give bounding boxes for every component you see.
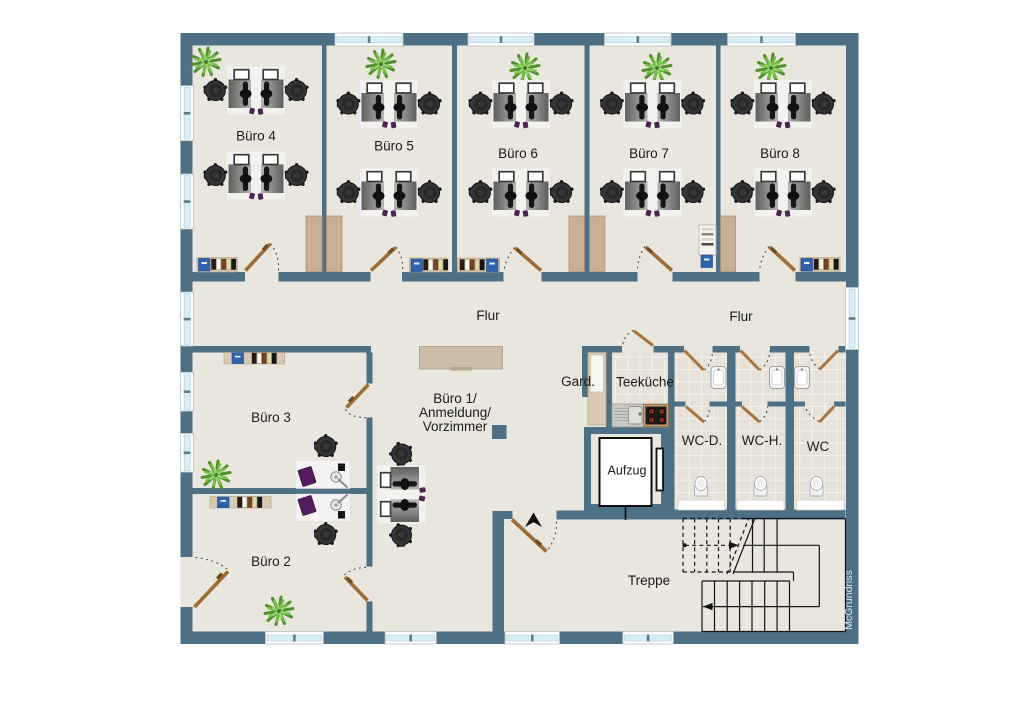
svg-text:WC: WC	[807, 439, 830, 454]
svg-text:Teeküche: Teeküche	[616, 375, 674, 390]
svg-text:Büro 1/: Büro 1/	[433, 391, 477, 406]
svg-text:Treppe: Treppe	[628, 573, 670, 588]
svg-text:Büro 5: Büro 5	[374, 139, 414, 154]
svg-text:McGrundriss: McGrundriss	[843, 570, 855, 630]
svg-text:Büro 4: Büro 4	[236, 129, 276, 144]
svg-text:Büro 8: Büro 8	[760, 146, 800, 161]
svg-text:Flur: Flur	[476, 308, 500, 323]
svg-text:Flur: Flur	[729, 309, 753, 324]
svg-text:Aufzug: Aufzug	[608, 464, 647, 478]
svg-text:Büro 7: Büro 7	[629, 146, 669, 161]
svg-text:Vorzimmer: Vorzimmer	[423, 419, 488, 434]
svg-text:Anmeldung/: Anmeldung/	[419, 405, 491, 420]
svg-text:Büro 3: Büro 3	[251, 410, 291, 425]
svg-text:WC-H.: WC-H.	[742, 433, 783, 448]
svg-text:Gard.: Gard.	[561, 374, 595, 389]
svg-text:Büro 6: Büro 6	[498, 146, 538, 161]
svg-text:WC-D.: WC-D.	[682, 433, 723, 448]
svg-text:Büro 2: Büro 2	[251, 554, 291, 569]
